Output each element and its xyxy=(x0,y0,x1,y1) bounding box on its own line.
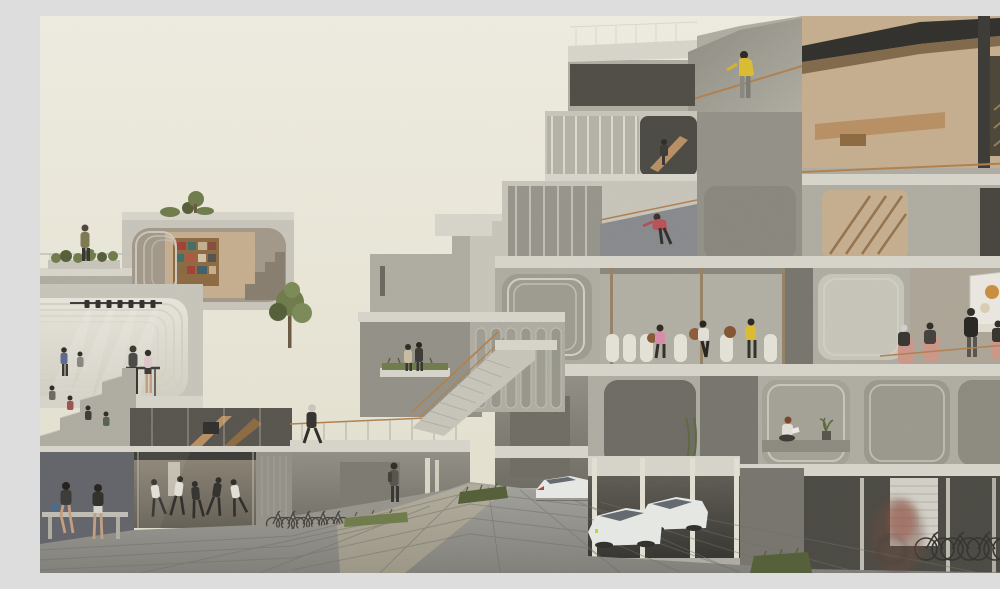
rendering-scene xyxy=(40,16,1000,573)
grain-overlay xyxy=(40,16,1000,573)
architectural-rendering-image xyxy=(40,16,1000,573)
